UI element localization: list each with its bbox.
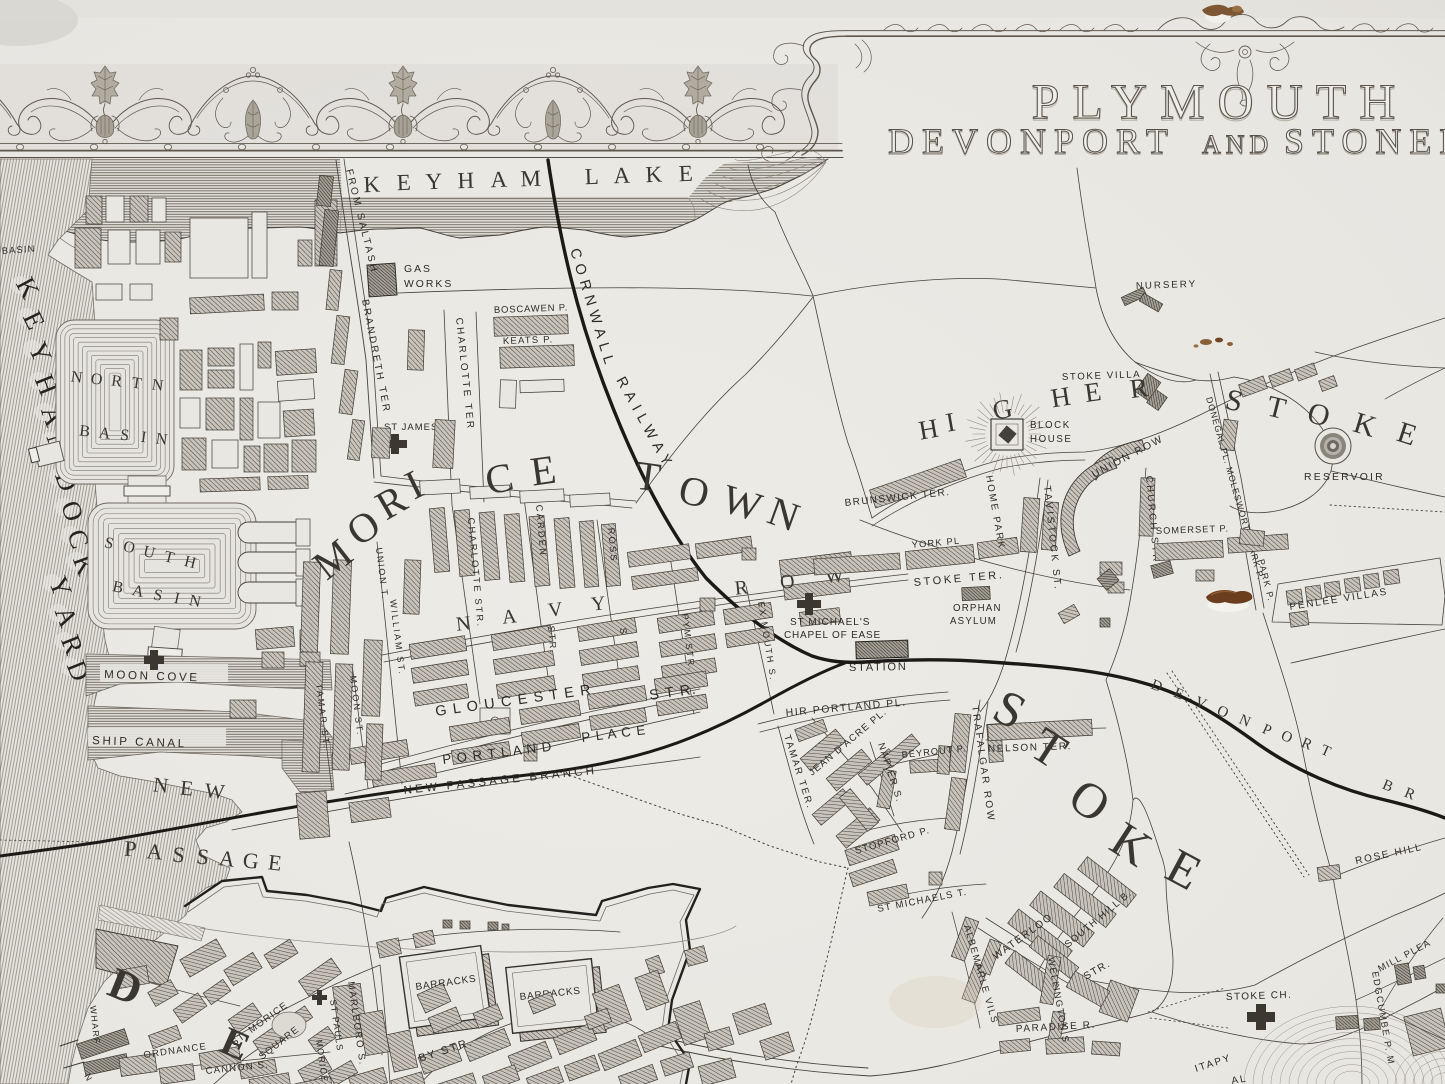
svg-text:ST MICHAEL'S: ST MICHAEL'S	[790, 617, 870, 628]
svg-text:S: S	[618, 627, 629, 636]
svg-text:Y: Y	[590, 592, 607, 615]
svg-text:HOUSE: HOUSE	[1030, 434, 1072, 445]
svg-text:AL: AL	[1231, 1073, 1249, 1084]
svg-text:KEATS P.: KEATS P.	[503, 334, 554, 347]
svg-text:K: K	[363, 172, 381, 198]
svg-text:STATION: STATION	[849, 661, 908, 674]
svg-text:A: A	[613, 163, 631, 189]
svg-text:O: O	[90, 370, 104, 388]
svg-text:NURSERY: NURSERY	[1136, 279, 1198, 292]
svg-text:M: M	[520, 166, 541, 192]
svg-text:RESERVOIR: RESERVOIR	[1304, 472, 1385, 483]
svg-text:R: R	[1128, 372, 1150, 404]
svg-text:DEVONPORT: DEVONPORT	[888, 121, 1176, 161]
svg-text:H: H	[457, 168, 474, 194]
svg-text:E: E	[678, 161, 693, 186]
svg-text:P: P	[124, 836, 138, 862]
svg-text:ASYLUM: ASYLUM	[950, 616, 997, 627]
svg-text:N: N	[152, 772, 170, 797]
svg-text:CHAPEL OF EASE: CHAPEL OF EASE	[784, 630, 881, 641]
svg-text:A: A	[218, 845, 237, 872]
svg-text:STONEHO: STONEHO	[1284, 121, 1445, 161]
svg-text:A: A	[146, 838, 164, 864]
svg-text:E: E	[396, 170, 411, 195]
svg-text:K: K	[645, 162, 663, 188]
svg-text:G: G	[242, 847, 261, 874]
svg-text:Y: Y	[425, 169, 443, 195]
svg-text:E: E	[179, 775, 194, 800]
svg-text:STOKE CH.: STOKE CH.	[1226, 990, 1293, 1003]
svg-text:W: W	[204, 778, 226, 804]
svg-text:O: O	[779, 570, 796, 593]
svg-text:ORPHAN: ORPHAN	[953, 603, 1002, 614]
svg-text:V: V	[547, 598, 564, 621]
svg-text:N: N	[455, 612, 472, 635]
svg-text:WORKS: WORKS	[404, 279, 453, 290]
svg-text:GAS: GAS	[404, 264, 432, 275]
svg-text:BLOCK: BLOCK	[1030, 420, 1071, 431]
svg-text:A: A	[490, 167, 508, 193]
svg-text:A: A	[501, 605, 518, 628]
svg-text:S: S	[171, 841, 186, 867]
svg-text:L: L	[584, 164, 599, 189]
svg-text:AND: AND	[1202, 130, 1273, 159]
